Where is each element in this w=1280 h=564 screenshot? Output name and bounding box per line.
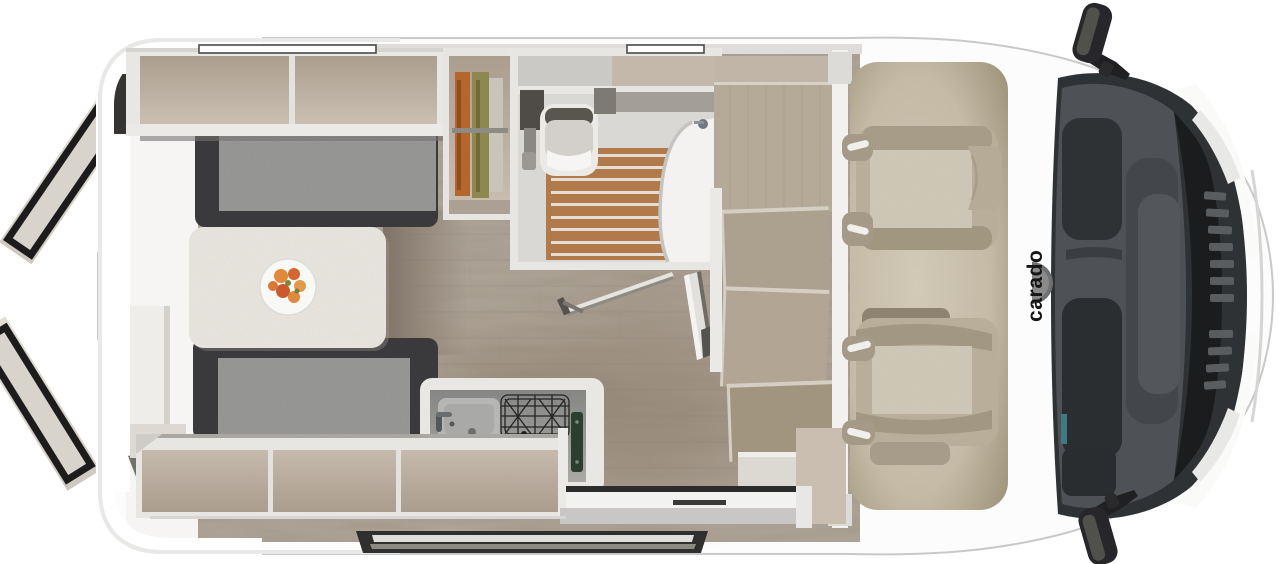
svg-text:carado: carado xyxy=(1024,250,1047,322)
